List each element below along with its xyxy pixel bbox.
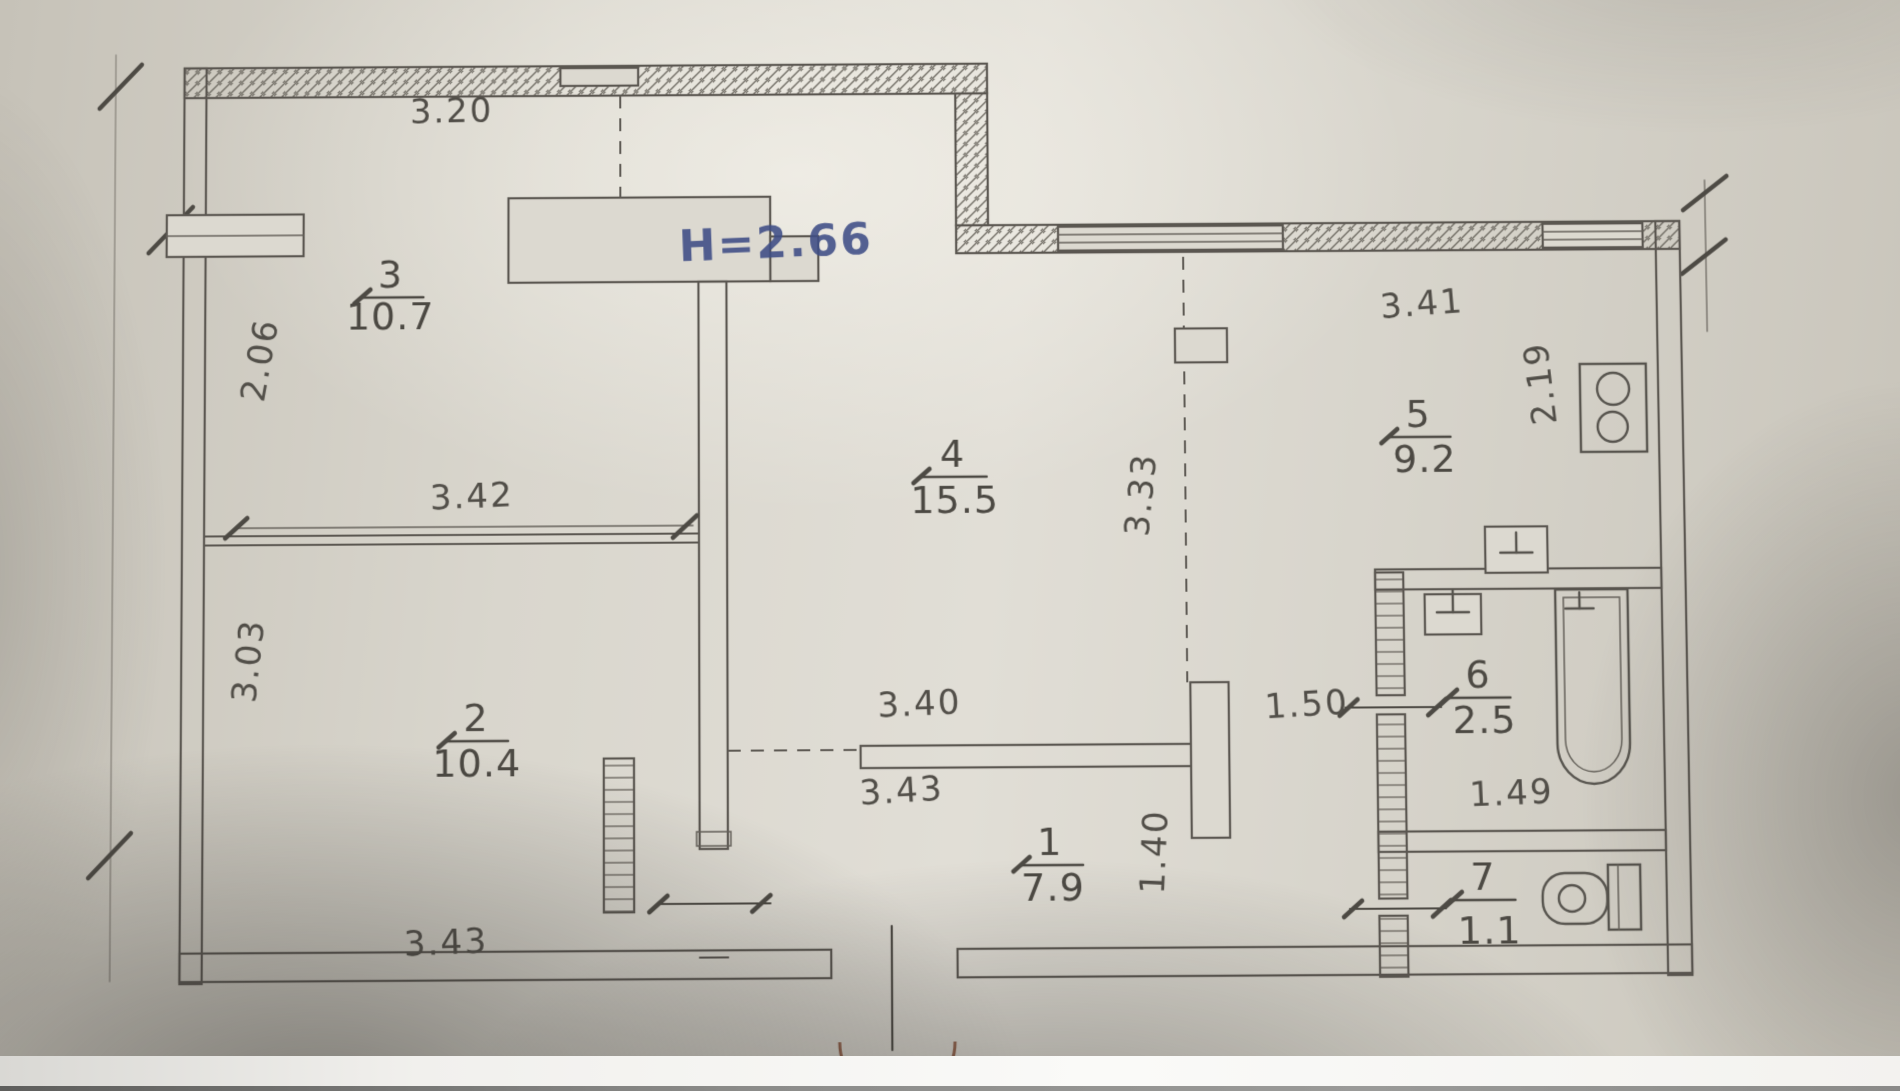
svg-text:1: 1 [1037, 819, 1063, 864]
svg-text:7: 7 [1470, 854, 1496, 899]
labels: H=2.66 3.20 3.41 2.19 3.33 2.06 3.42 3.0… [223, 84, 1575, 966]
svg-text:9.2: 9.2 [1393, 437, 1457, 481]
photo-edge-white [0, 1056, 1900, 1086]
svg-text:4: 4 [940, 432, 966, 476]
bottom-wall-right [958, 944, 1693, 977]
dim-corridor-width: 1.40 [1133, 808, 1177, 895]
dim-kitchen-opening: 1.50 [1263, 682, 1350, 727]
stove-icon [1580, 364, 1648, 452]
closet-wall [604, 758, 634, 912]
floor-plan-drawing: H=2.66 3.20 3.41 2.19 3.33 2.06 3.42 3.0… [0, 0, 1900, 1091]
dim-top-wall: 3.20 [409, 91, 493, 133]
dim-kitchen-side: 2.19 [1516, 340, 1566, 427]
sink-icon [1425, 590, 1482, 635]
dim-bottom-left: 3.43 [403, 921, 489, 965]
left-dimension-line [87, 55, 193, 982]
svg-text:2: 2 [463, 696, 488, 741]
floor-plan-photo: H=2.66 3.20 3.41 2.19 3.33 2.06 3.42 3.0… [0, 0, 1900, 1091]
step-wall [955, 93, 988, 225]
room-label-1: 1 7.9 [1013, 819, 1085, 910]
corridor-kitchen-wall [861, 744, 1194, 768]
room-label-6: 6 2.5 [1440, 652, 1516, 742]
bathroom-bottom-wall [1378, 830, 1666, 852]
kitchen-window-2 [1542, 223, 1642, 247]
dim-bathroom-width: 1.49 [1468, 771, 1554, 815]
room-label-3: 3 10.7 [346, 252, 435, 338]
svg-text:7.9: 7.9 [1021, 865, 1085, 910]
dim-room2-side: 3.03 [224, 617, 273, 705]
right-wall [1655, 221, 1692, 975]
room4-kitchen-boundary [1183, 257, 1187, 683]
bottom-wall-left [179, 950, 831, 982]
svg-text:1.1: 1.1 [1457, 908, 1522, 953]
room-label-5: 5 9.2 [1381, 392, 1457, 481]
dim-kitchen-width: 3.41 [1379, 281, 1466, 327]
svg-text:10.7: 10.7 [346, 294, 435, 338]
photo-edge-dark [0, 1086, 1900, 1091]
kitchen-window-1 [1058, 225, 1283, 250]
entrance-axis [892, 926, 893, 1050]
partition-rooms-2-4 [698, 281, 728, 849]
pier [1175, 328, 1227, 362]
room-label-2: 2 10.4 [432, 695, 521, 785]
door-jamb [1190, 682, 1230, 838]
svg-text:10.4: 10.4 [432, 741, 521, 786]
bathroom-wall-upper [1375, 572, 1405, 695]
dim-room4-opening: 3.40 [877, 682, 963, 726]
water-heater-icon [1485, 526, 1548, 573]
bathroom-wall-mid [1377, 714, 1408, 898]
svg-text:5: 5 [1405, 392, 1431, 436]
svg-text:2.5: 2.5 [1452, 697, 1516, 742]
right-dimension-line [1680, 176, 1729, 331]
dim-corridor-wall: 3.43 [858, 768, 945, 813]
room-label-4: 4 15.5 [910, 431, 999, 522]
room-label-7: 7 1.1 [1445, 854, 1522, 953]
ceiling-height-label: H=2.66 [678, 214, 874, 273]
dim-room4-kitchen-side: 3.33 [1117, 451, 1165, 538]
room4-corridor-boundary [728, 750, 863, 751]
toilet-icon [1542, 865, 1641, 931]
dim-room3-side: 2.06 [233, 316, 287, 405]
dim-rooms23-width: 3.42 [429, 475, 514, 519]
bathtub-icon [1555, 589, 1631, 784]
bathroom-wall-lower [1379, 916, 1408, 977]
svg-text:6: 6 [1465, 652, 1491, 697]
svg-text:3: 3 [378, 253, 403, 297]
partition-rooms-3-2 [204, 533, 699, 536]
svg-text:15.5: 15.5 [910, 478, 999, 523]
